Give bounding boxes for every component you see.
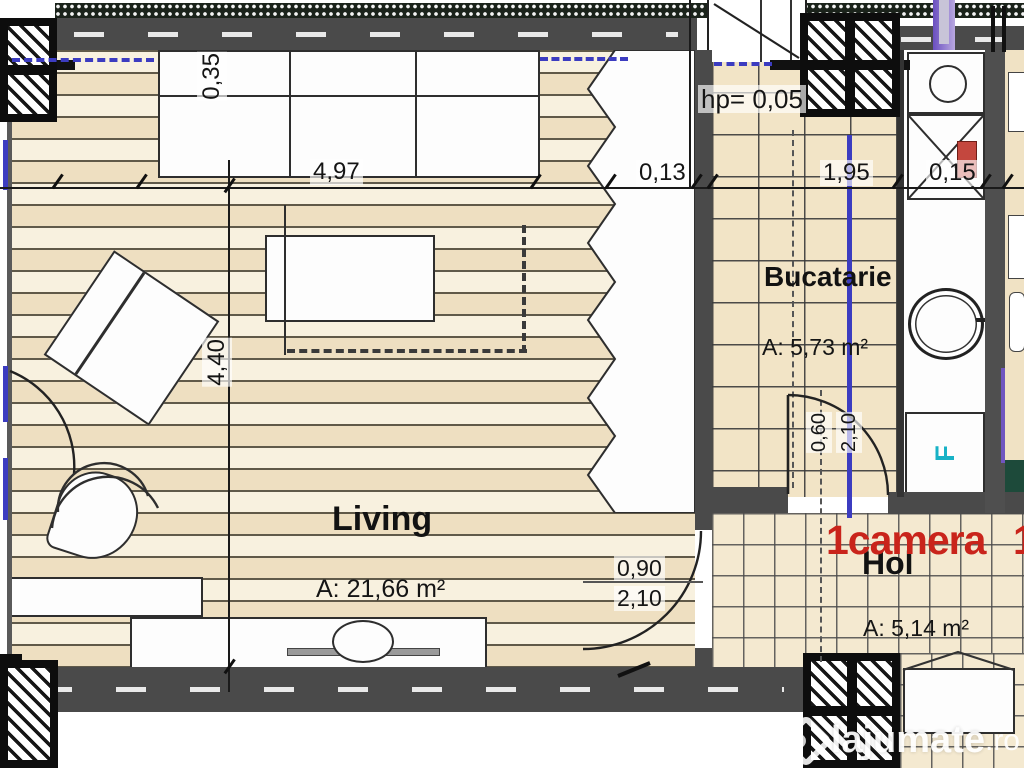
pipe-purple — [933, 0, 955, 50]
dim-wall-b: 0,15 — [926, 160, 979, 186]
dim-living-width: 4,97 — [310, 159, 363, 185]
dim-door-width: 0,90 — [614, 556, 665, 581]
dim-line-horizontal — [0, 187, 1024, 189]
room-area-kitchen: A: 5,73 m² — [762, 334, 868, 361]
room-area-living: A: 21,66 m² — [316, 575, 445, 604]
sideboard — [10, 577, 203, 617]
dashed-axis — [792, 130, 794, 488]
window-frame — [1002, 6, 1006, 52]
listing-badge-partial: 1 — [1013, 517, 1024, 564]
extension-line — [689, 0, 691, 187]
fridge-label: F — [930, 445, 961, 462]
listing-badge: 1camera — [826, 517, 985, 564]
fridge: F — [905, 412, 985, 494]
watermark: lajumate .ro — [763, 719, 1020, 762]
window-sill-line — [714, 62, 772, 66]
dim-kdoor-width: 0,60 — [806, 412, 832, 453]
watermark-tld: .ro — [985, 724, 1020, 758]
window-sill-line — [540, 57, 628, 61]
kitchen-hall-wall — [712, 487, 788, 513]
side-room-fixture — [1008, 215, 1024, 279]
top-wall — [55, 18, 697, 50]
pillar-top-left — [0, 18, 57, 122]
side-room-fixture — [1009, 292, 1024, 352]
dim-living-height: 4,40 — [202, 338, 232, 387]
extension-line — [284, 205, 286, 355]
dim-kdoor-height: 2,10 — [836, 412, 862, 453]
pillar-top-center — [800, 13, 900, 117]
sink — [908, 288, 984, 360]
side-room-fixture — [1008, 72, 1024, 132]
coffee-table — [265, 235, 435, 322]
dim-parapet: hp= 0,05 — [698, 85, 806, 113]
boiler — [907, 52, 985, 114]
window-mark — [3, 140, 8, 190]
room-area-hall: A: 5,14 m² — [863, 615, 969, 642]
window-frame — [991, 6, 995, 52]
living-kitchen-wall — [695, 50, 712, 530]
pipe-purple-right — [1001, 368, 1005, 463]
floor-plan: F — [0, 0, 1024, 768]
dim-kitchen-width: 1,95 — [820, 160, 873, 186]
dim-closet-depth: 0,35 — [197, 52, 227, 101]
balcony-door-gap — [707, 0, 807, 62]
rug-dashed-line — [287, 349, 527, 353]
balcony-railing — [55, 3, 707, 18]
rug-dashed-line-v — [522, 225, 526, 353]
kitchen-side-wall — [897, 50, 904, 497]
watermark-brand: lajumate — [831, 719, 985, 762]
bottom-wall — [18, 667, 808, 712]
pillar-bottom-left — [0, 660, 58, 768]
window-mark — [3, 366, 8, 422]
room-label-living: Living — [332, 500, 432, 539]
partition-zigzag — [580, 50, 695, 513]
pipe-blue — [847, 135, 852, 518]
tv — [332, 620, 394, 663]
dim-line-vertical — [228, 160, 230, 692]
dim-door-height: 2,10 — [614, 586, 665, 611]
window-mark — [3, 458, 8, 520]
room-label-kitchen: Bucatarie — [764, 261, 892, 293]
dim-wall-a: 0,13 — [636, 160, 689, 186]
window-sill-line — [12, 58, 154, 62]
door-dim-divider — [583, 581, 703, 583]
